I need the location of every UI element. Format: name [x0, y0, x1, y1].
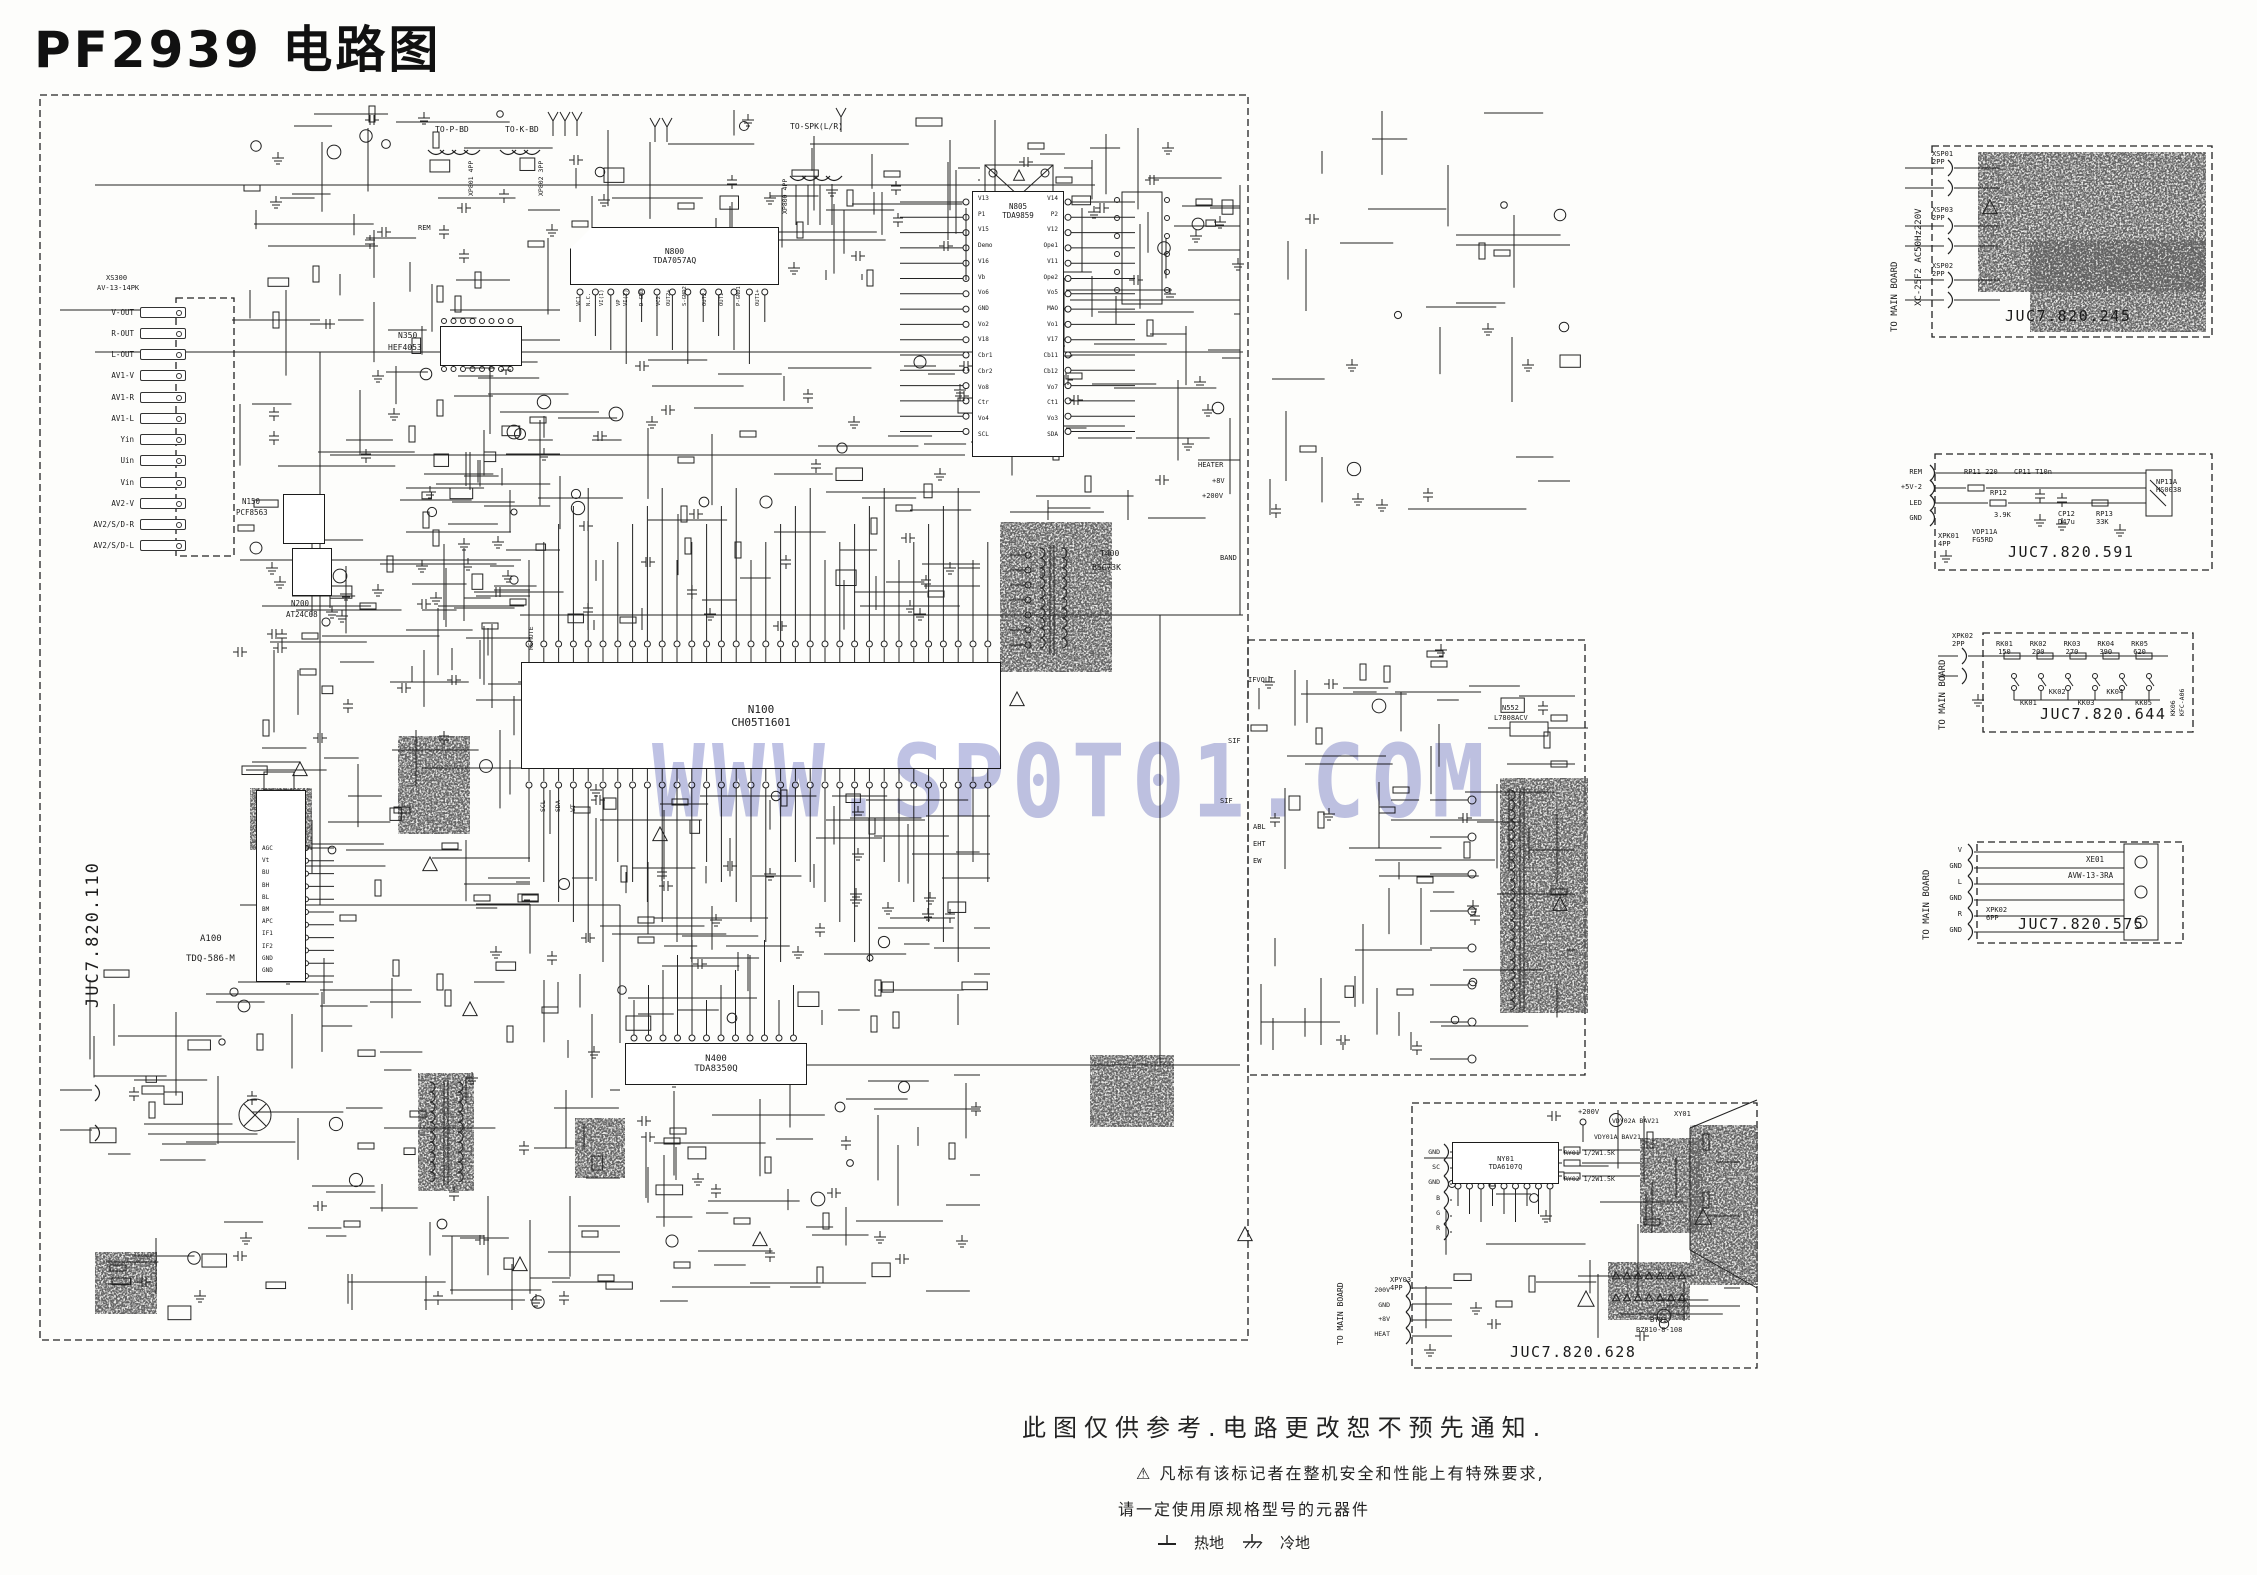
ic-n350-ref: N350: [398, 331, 417, 340]
t400-part: BSC73K: [1092, 563, 1121, 572]
n805-pin-label: SDA: [1022, 432, 1058, 438]
b245-side-label: TO MAIN BOARD: [1890, 262, 1900, 332]
rca-jack-icon: [140, 519, 186, 530]
b245-xsp02: XSP022PP: [1932, 262, 1953, 279]
b575-code: JUC7.820.575: [2018, 916, 2144, 933]
n805-pin-label: Vo8: [978, 385, 992, 391]
av-jack-label: V-OUT: [56, 308, 134, 317]
av-jack-label: AV2/S/D-R: [56, 520, 134, 529]
net-sif: SIF: [1228, 737, 1241, 745]
b644-resistor: RK01150: [1996, 640, 2013, 657]
n805-pin-label: GND: [978, 306, 992, 312]
tuner-pin-label: Vt: [262, 858, 273, 864]
b644-code: JUC7.820.644: [2040, 706, 2166, 723]
conn-xp801: XP801 4PP: [468, 161, 475, 196]
note-warning-2: 请一定使用原规格型号的元器件: [1118, 1496, 1370, 1520]
b591-rp12: RP12: [1990, 489, 2007, 497]
n800-pin-labels: VC1N.C.VI(1)VPVI(2)D-GNDVC2OUT2+S-GND2OU…: [576, 282, 772, 308]
b628-xy01: XY01: [1674, 1110, 1691, 1118]
ic-n200-part: AT24C08: [286, 611, 318, 620]
note-warning-1: ⚠ 凡标有该标记者在整机安全和性能上有特殊要求,: [1136, 1460, 1545, 1484]
n805-pin-label: Vo7: [1022, 385, 1058, 391]
schematic-page: PF2939 电路图 WWW.SP0T01.COM JUC7.820.110 X…: [0, 0, 2257, 1575]
b628-input-signal: SC: [1416, 1163, 1440, 1171]
rca-jack-icon: [140, 434, 186, 445]
ny01-ref: NY01: [1497, 1155, 1514, 1163]
b575-signal: GND: [1934, 894, 1962, 902]
b245-code: JUC7.820.245: [2005, 308, 2131, 325]
ic-n800-box: N800 TDA7057AQ: [570, 227, 779, 285]
n805-pin-label: Vo4: [978, 416, 992, 422]
b628-by01-part: BZ810-8-108: [1636, 1326, 1682, 1334]
b575-signal: V: [1934, 846, 1962, 854]
n805-pin-label: Vo5: [1022, 290, 1058, 296]
b644-key-label: KK01: [2020, 699, 2037, 707]
ic-n100-part: CH05T1601: [731, 716, 791, 729]
b575-signal: L: [1934, 878, 1962, 886]
n100-pin-vt: VT: [570, 804, 577, 812]
rca-jack-icon: [140, 370, 186, 381]
rca-jack-icon: [140, 349, 186, 360]
b591-vdp11a: VDP11AFG5RD: [1972, 528, 1997, 545]
rca-jack-icon: [140, 307, 186, 318]
b628-conn-signal: HEAT: [1360, 1330, 1390, 1338]
av-jack: Uin: [56, 455, 186, 467]
n800-pin-label: S-GND2: [682, 286, 686, 306]
rca-jack-icon: [140, 540, 186, 551]
n552-ref: N552: [1502, 704, 1519, 712]
n805-pin-label: MAO: [1022, 306, 1058, 312]
net-8v: +8V: [1212, 477, 1225, 485]
n805-pin-label: Vo6: [978, 290, 992, 296]
cold-ground-label: 冷地: [1280, 1532, 1310, 1553]
ic-n100-ref: N100: [748, 703, 775, 716]
ic-n800-part: TDA7057AQ: [653, 256, 696, 265]
b628-conn-signal: 200V: [1360, 1286, 1390, 1294]
net-200v: +200V: [1202, 492, 1223, 500]
av-jack: AV1-R: [56, 391, 186, 403]
n800-pin-label: N.C.: [586, 293, 590, 306]
b644-kk06-part: KFC-A06: [2179, 689, 2186, 716]
rca-jack-icon: [140, 392, 186, 403]
n800-pin-label: P-GND1: [736, 286, 740, 306]
n805-pins-left: V13P1V15DemoV16VbVo6GNDVo2V18Cbr1Cbr2Vo8…: [978, 196, 992, 438]
b628-code: JUC7.820.628: [1510, 1344, 1636, 1361]
b628-input-signal: GND: [1416, 1178, 1440, 1186]
tuner-pin-label: GND: [262, 956, 273, 962]
n805-pin-label: SCL: [978, 432, 992, 438]
b591-np11a: NP11AHS0038: [2156, 478, 2181, 495]
b644-conn: XPK022PP: [1952, 632, 1973, 649]
av-jack: AV1-V: [56, 370, 186, 382]
b575-signal: GND: [1934, 926, 1962, 934]
ground-legend: 热地 冷地: [1156, 1532, 1310, 1553]
tuner-pin-label: APC: [262, 919, 273, 925]
n800-pin-label: VC2: [656, 296, 660, 306]
n800-pin-label: VI(2): [623, 289, 627, 306]
b575-side-label: TO MAIN BOARD: [1922, 870, 1932, 940]
n800-pin-label: VI(1): [599, 289, 603, 306]
b628-input-signal: R: [1416, 1224, 1440, 1232]
tuner-ref: A100: [200, 934, 222, 944]
av-jack-label: R-OUT: [56, 329, 134, 338]
n800-pin-label: OUT2-: [702, 289, 706, 306]
net-ifvolt: IFVOLT: [1248, 676, 1273, 684]
n805-pin-label: Demo: [978, 243, 992, 249]
av-jack-label: AV1-L: [56, 414, 134, 423]
b628-ry01: RY01 1/2W1.5K: [1564, 1150, 1615, 1157]
n805-pin-label: V15: [978, 227, 992, 233]
ny01-part: TDA6107Q: [1489, 1163, 1523, 1171]
n805-pin-label: V11: [1022, 259, 1058, 265]
ic-n400-box: N400 TDA8350Q: [625, 1043, 807, 1085]
net-band: BAND: [1220, 554, 1237, 562]
rca-jack-icon: [140, 328, 186, 339]
ic-n200-ref: N200: [291, 600, 309, 609]
b644-side-label: TO MAIN BOARD: [1938, 660, 1948, 730]
tuner-pin-label: GND: [262, 968, 273, 974]
net-heater: HEATER: [1198, 461, 1223, 469]
rca-jack-icon: [140, 498, 186, 509]
conn-xp800: XP800 4PP: [782, 179, 789, 214]
n805-pin-label: V16: [978, 259, 992, 265]
n800-pin-label: OUT1+: [755, 289, 759, 306]
n805-pins-right: V14P2V12Ope1V11Ope2Vo5MAOVo1V17Cb11Cb12V…: [1022, 196, 1058, 438]
rca-jack-icon: [140, 477, 186, 488]
b575-xe01: XE01: [2086, 856, 2104, 865]
ic-n200-box: [292, 548, 332, 596]
n805-pin-label: P1: [978, 212, 992, 218]
ic-n150-ref: N150: [242, 498, 260, 507]
av-jack-list: V-OUT R-OUT L-OUT AV1-V AV1-R AV1-L Yin …: [56, 306, 186, 552]
av-jack-label: AV1-V: [56, 371, 134, 380]
ic-n400-part: TDA8350Q: [694, 1064, 737, 1074]
b644-resistors: RK01150 RK02200 RK03270 RK04390 RK05620: [1996, 640, 2148, 657]
n800-pin-label: VP: [616, 299, 620, 306]
rca-jack-icon: [140, 455, 186, 466]
b628-input-signal: B: [1416, 1194, 1440, 1202]
b591-signal: +5V-2: [1890, 483, 1922, 491]
rca-jack-icon: [140, 413, 186, 424]
av-jack: R-OUT: [56, 327, 186, 339]
main-board-code: JUC7.820.110: [84, 861, 104, 1008]
b644-resistor: RK05620: [2131, 640, 2148, 657]
ic-n350-part: HEF4053: [388, 343, 422, 352]
b628-vdy02a: VDY02A BAV21: [1612, 1118, 1659, 1125]
av-jack-label: L-OUT: [56, 350, 134, 359]
n805-pin-label: V12: [1022, 227, 1058, 233]
page-title: PF2939 电路图: [34, 10, 441, 82]
av-jack-label: AV1-R: [56, 393, 134, 402]
n805-pin-label: Cb11: [1022, 353, 1058, 359]
tuner-pin-label: BU: [262, 870, 273, 876]
net-rem: REM: [418, 224, 431, 232]
tuner-pin-label: BH: [262, 883, 273, 889]
tuner-pin-label: BM: [262, 907, 273, 913]
n805-pin-label: Vo2: [978, 322, 992, 328]
b644-resistor: RK02200: [2030, 640, 2047, 657]
b628-input-signal: G: [1416, 1209, 1440, 1217]
conn-to-p-bd: TO-P-BD: [435, 125, 469, 134]
av-jack-label: Uin: [56, 456, 134, 465]
t400-ref: T400: [1100, 549, 1119, 558]
tuner-part: TDQ-586-M: [186, 954, 235, 964]
n100-pin-sda: SDA: [555, 800, 562, 812]
ic-n800-ref: N800: [665, 247, 684, 256]
b591-signal: GND: [1890, 514, 1922, 522]
n805-pin-label: V18: [978, 337, 992, 343]
ic-n150-part: PCF8563: [236, 509, 268, 518]
av-jack-label: AV2/S/D-L: [56, 541, 134, 550]
b591-signal: LED: [1890, 499, 1922, 507]
n805-pin-label: V17: [1022, 337, 1058, 343]
av-jack-label: AV2-V: [56, 499, 134, 508]
b591-signal: REM: [1890, 468, 1922, 476]
av-panel-ref: XS300: [106, 274, 127, 282]
tuner-pin-label: IF2: [262, 944, 273, 950]
ic-n400-ref: N400: [705, 1054, 727, 1064]
n805-pin-label: Ope2: [1022, 275, 1058, 281]
n805-pin-label: Vb: [978, 275, 992, 281]
tuner-pins: AGCVtBUBHBLBMAPCIF1IF2GNDGND: [262, 846, 273, 974]
b628-conn-signals: 200VGND+8VHEAT: [1360, 1286, 1390, 1338]
cold-ground-icon: [1240, 1534, 1264, 1552]
b245-mains-label: XC-25F2 AC50Hz220V: [1914, 208, 1924, 306]
n100-pin-scl: SCL: [540, 800, 547, 812]
b575-conn: XPK026PP: [1986, 906, 2007, 923]
note-disclaimer: 此图仅供参考.电路更改恕不预先通知.: [1022, 1408, 1547, 1443]
b591-rp11: RP11 220: [1964, 468, 1998, 476]
av-panel-type: AV-13-14PK: [97, 284, 139, 292]
n100-pin-remote: REMOTE: [528, 627, 535, 650]
ic-n350-box: [440, 326, 522, 366]
ic-ny01-box: NY01 TDA6107Q: [1452, 1142, 1559, 1184]
tuner-pin-label: AGC: [262, 846, 273, 852]
b628-input-signals: GNDSCGNDBGR: [1416, 1148, 1440, 1232]
b591-code: JUC7.820.591: [2008, 544, 2134, 561]
conn-xp802: XP802 3PP: [538, 161, 545, 196]
net-ew: EW: [1253, 857, 1261, 865]
av-jack: V-OUT: [56, 306, 186, 318]
n800-pin-label: OUT1-: [719, 289, 723, 306]
net-sif-2: SIF: [1220, 797, 1233, 805]
b644-resistor: RK04390: [2097, 640, 2114, 657]
b628-conn-signal: +8V: [1360, 1315, 1390, 1323]
hot-ground-label: 热地: [1194, 1532, 1224, 1553]
n800-pin-label: OUT2+: [666, 289, 670, 306]
n805-pin-label: V14: [1022, 196, 1058, 202]
n805-pin-label: Cb12: [1022, 369, 1058, 375]
n805-pin-label: Ctr: [978, 400, 992, 406]
b628-by01: BY01: [1650, 1316, 1667, 1324]
b644-resistor: RK03270: [2064, 640, 2081, 657]
n805-pin-label: Vo3: [1022, 416, 1058, 422]
n805-pin-label: Cbr1: [978, 353, 992, 359]
av-jack: Yin: [56, 434, 186, 446]
av-jack: AV2-V: [56, 497, 186, 509]
n805-pin-label: Ct1: [1022, 400, 1058, 406]
conn-to-spk: TO-SPK(L/R): [790, 122, 843, 131]
b591-conn: XPK014PP: [1938, 532, 1959, 549]
b628-input-signal: GND: [1416, 1148, 1440, 1156]
b628-200v: +200V: [1578, 1108, 1599, 1116]
tuner-pin-label: BL: [262, 895, 273, 901]
n805-pin-label: Vo1: [1022, 322, 1058, 328]
av-jack: AV1-L: [56, 412, 186, 424]
n800-pin-label: VC1: [576, 296, 580, 306]
av-jack-label: Vin: [56, 478, 134, 487]
b591-rp12v: 3.9K: [1994, 511, 2011, 519]
n805-pin-label: Cbr2: [978, 369, 992, 375]
av-jack: AV2/S/D-L: [56, 540, 186, 552]
net-eht: EHT: [1253, 840, 1266, 848]
b245-xsp01: XSP012PP: [1932, 150, 1953, 167]
b628-ry02: RY02 1/2W1.5K: [1564, 1176, 1615, 1183]
av-jack-label: Yin: [56, 435, 134, 444]
b591-rp13: RP1333K: [2096, 510, 2113, 527]
n552-part: L7808ACV: [1494, 714, 1528, 722]
b644-kk06: KK06: [2170, 700, 2177, 716]
ic-n150-box: [283, 494, 325, 544]
n805-pin-label: V13: [978, 196, 992, 202]
b575-signal: R: [1934, 910, 1962, 918]
b628-conn-signal: GND: [1360, 1301, 1390, 1309]
tuner-pin-label: IF1: [262, 931, 273, 937]
net-abl: ABL: [1253, 823, 1266, 831]
n805-pin-label: P2: [1022, 212, 1058, 218]
b575-signal: GND: [1934, 862, 1962, 870]
av-jack: AV2/S/D-R: [56, 519, 186, 531]
b591-signals: REM+5V-2LEDGND: [1890, 468, 1922, 522]
hot-ground-icon: [1156, 1535, 1178, 1551]
conn-to-k-bd: TO-K-BD: [505, 125, 539, 134]
b575-signals: VGNDLGNDRGND: [1934, 846, 1962, 934]
b591-cp11: CP11 T10n: [2014, 468, 2052, 476]
n805-pin-label: Ope1: [1022, 243, 1058, 249]
b575-xe01-part: AVW-13-3RA: [2068, 872, 2113, 881]
n800-pin-label: D-GND: [639, 289, 643, 306]
av-jack: Vin: [56, 476, 186, 488]
av-jack: L-OUT: [56, 349, 186, 361]
b628-conn: XPY034PP: [1390, 1276, 1411, 1293]
b245-xsp03: XSP032PP: [1932, 206, 1953, 223]
b628-side-label: TO MAIN BOARD: [1336, 1282, 1345, 1345]
b628-vdy01a: VDY01A BAV21: [1594, 1134, 1641, 1141]
b591-cp12: CP12D47u: [2058, 510, 2075, 527]
warning-triangle-icon: ⚠: [1136, 1464, 1152, 1483]
ic-n100-box: N100 CH05T1601: [521, 662, 1001, 769]
